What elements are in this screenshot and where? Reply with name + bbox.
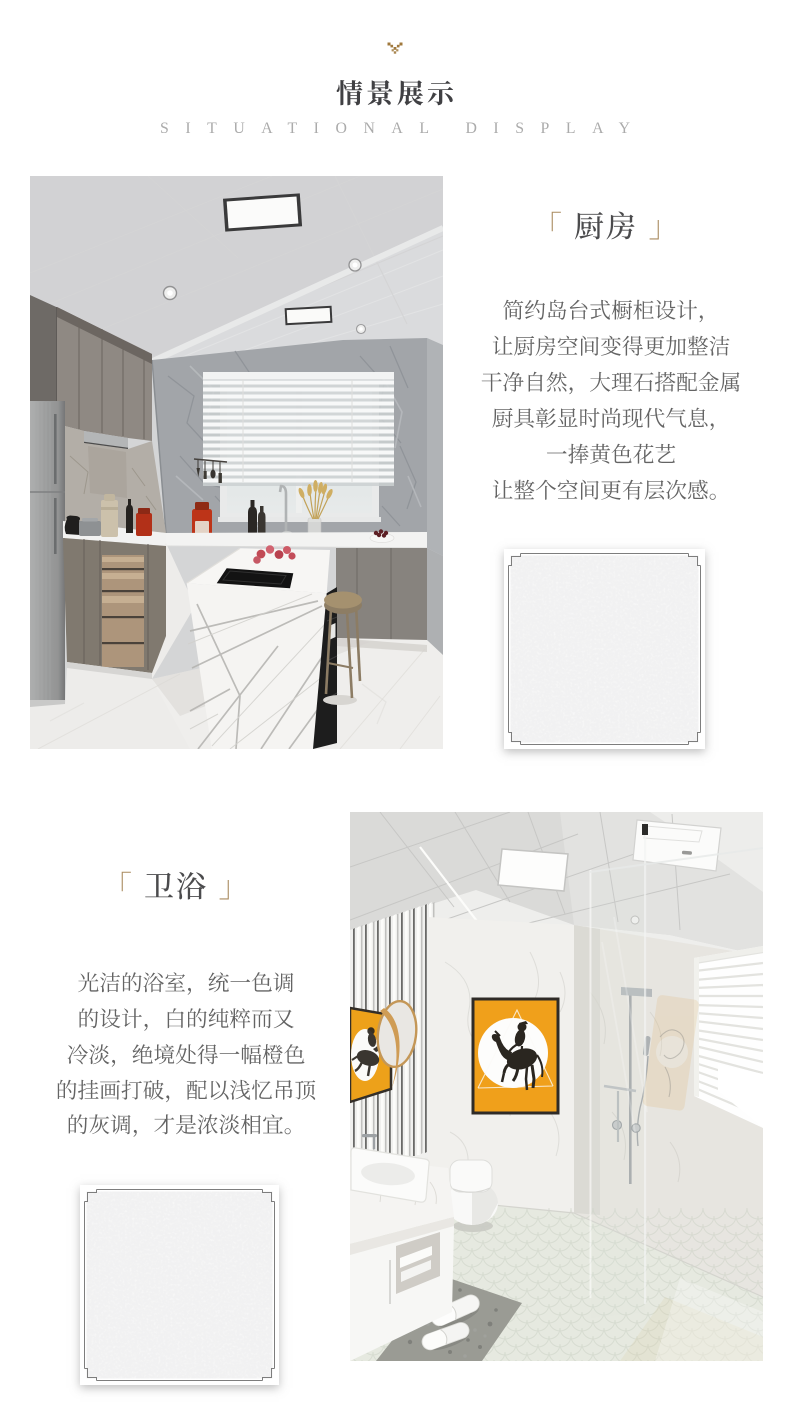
svg-text:SITUATIONAL DISPLAY: SITUATIONAL DISPLAY bbox=[160, 120, 630, 137]
